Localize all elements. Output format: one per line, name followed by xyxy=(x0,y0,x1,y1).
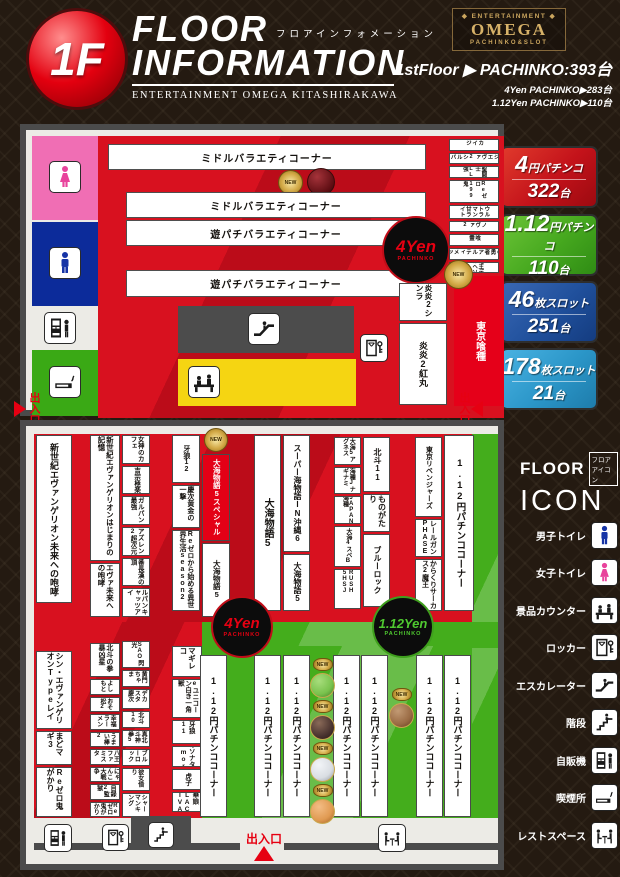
machine-box: 1.12円パチンココーナー xyxy=(200,655,227,817)
stats-4yen: 4Yen PACHINKO▶283台 xyxy=(378,84,612,97)
machine-column: 大海物語5 xyxy=(254,434,281,612)
112yen-corner-column: 1.12円パチンココーナー xyxy=(283,654,310,818)
summary-panel-112yen: 1.12円パチンコ 110台 xyxy=(500,214,598,276)
machine-box: シャーマンキング xyxy=(122,793,150,817)
machine-box: Reゼロ鬼がかり xyxy=(36,767,72,817)
locker-icon xyxy=(102,824,129,851)
machine-box: 1.12円パチンココーナー xyxy=(444,435,474,611)
title-underline xyxy=(132,84,394,86)
machine-box: 1.12円パチンココーナー xyxy=(361,655,388,817)
machine-box: 目録2監獄 xyxy=(90,784,120,799)
machine-box: ルパンキャッツアイ xyxy=(122,588,150,617)
floor-badge-label: 1F xyxy=(50,32,104,86)
machine-box: マギレコ xyxy=(172,646,202,677)
floor-stats-sub: 4Yen PACHINKO▶283台 1.12Yen PACHINKO▶110台 xyxy=(378,84,612,110)
omega-logo-bottom: PACHINKO&SLOT xyxy=(453,40,565,46)
panel-big: 4 xyxy=(515,151,528,177)
machine-box: 東京リベンジャーズ xyxy=(415,437,442,517)
legend-title-jp: フロアアイコン xyxy=(589,452,619,486)
variety-row: 遊パチバラエティコーナー xyxy=(126,270,426,297)
locker-icon xyxy=(591,634,618,661)
4yen-pachinko-badge: 4Yen PACHINKO xyxy=(211,596,273,658)
machine-box: 吉宗極楽 xyxy=(122,466,150,495)
machine-column: 新世紀エヴァンゲリオン未来への咆哮 xyxy=(36,434,72,604)
locker-icon xyxy=(360,334,388,362)
machine-box: にゃんこ大戦争 xyxy=(90,767,120,782)
new-badge: NEW xyxy=(313,784,333,797)
character-face-badge xyxy=(310,757,335,782)
female-toilet-icon xyxy=(49,161,81,193)
new-badge: NEW xyxy=(313,742,333,755)
machine-strip: 東京喰種 xyxy=(454,276,504,406)
machine-box: Reゼロ199鬼 xyxy=(449,180,499,203)
112yen-corner-column: 1.12円パチンココーナー xyxy=(444,654,471,818)
machine-box: 冬のソナタMemory xyxy=(172,746,202,767)
new-machine-badges: NEW xyxy=(389,688,414,752)
character-face-badge xyxy=(310,673,335,698)
legend-item: 景品カウンター xyxy=(512,591,618,629)
male-toilet-icon xyxy=(49,247,81,279)
womens-toilet-block xyxy=(32,136,98,220)
machine-box: まどマギ3 xyxy=(36,731,72,765)
machine-column: シン・エヴァンゲリオンTypeレイまどマギ3Reゼロ鬼がかり xyxy=(36,650,72,818)
vending-machine-icon xyxy=(44,824,72,852)
prize-counter-icon xyxy=(188,366,220,398)
floor-information-poster: 1F FLOOR フロアインフォメーション INFORMATION ENTERT… xyxy=(0,0,620,877)
machine-box: Reゼロ鬼がかり xyxy=(90,802,120,817)
machine-column: 女神のカフェ吉宗極楽ガルパン最強アズレン2超次元番長漢の頂ルパンキャッツアイ xyxy=(122,434,150,618)
machine-box: エヴァ未来への咆哮 xyxy=(90,563,120,617)
machine-column: 1.12円パチンココーナー xyxy=(444,434,474,612)
machine-box: 1.12円パチンココーナー xyxy=(254,655,281,817)
112yen-corner-column: 1.12円パチンココーナー xyxy=(254,654,281,818)
machine-box: 大海物語5 xyxy=(283,554,310,611)
machine-column: マギレコeユニコーン白き一角獣牙狼11冬のソナタMemory虎子中華娘BLACK… xyxy=(172,645,202,813)
machine-box: うまい棒2 xyxy=(90,732,120,747)
smoking-area-icon xyxy=(49,366,81,398)
machine-box: 番長漢の頂 xyxy=(122,558,150,587)
machine-column: カイジゴジエヴァ2シルバー聖闘士LL強Reゼロ199鬼ウルトラマン甘ライトノヴァ… xyxy=(449,138,499,274)
legend-item: ロッカー xyxy=(512,629,618,667)
machine-box: ノヴァ2 xyxy=(449,221,499,233)
machine-box: デカスタ慶次 xyxy=(122,689,150,709)
smoking-area-block xyxy=(32,350,98,416)
legend-item: 階段 xyxy=(512,704,618,742)
machine-box: RUSH 5HSJ xyxy=(334,569,361,610)
machine-box: 八王ファミスタ xyxy=(90,749,120,764)
machine-box: 真の勇者アルティメット xyxy=(449,248,499,260)
female-toilet-icon xyxy=(591,559,618,586)
legend-item: エスカレーター xyxy=(512,666,618,704)
stairs-icon xyxy=(148,822,174,848)
rest-space-icon xyxy=(591,822,618,849)
machine-box: 黄門ちゃま xyxy=(122,670,150,687)
machine-column: 北斗11ものがたりブルーロック xyxy=(363,436,390,608)
machine-box: 大海物語5スペシャル xyxy=(202,454,230,541)
male-toilet-icon xyxy=(591,522,618,549)
stats-112yen: 1.12Yen PACHINKO▶110台 xyxy=(378,97,612,110)
machine-column: 大海5アグネス海種JナギナミJAPAN海種大海4スペBRUSH 5HSJ xyxy=(334,436,361,610)
machine-box: アズレン2超次元 xyxy=(122,527,150,556)
machine-box: Reゼロから始める異世界生活season2 xyxy=(172,530,200,611)
112yen-corner-column: 1.12円パチンココーナー xyxy=(333,654,360,818)
prize-counter-icon xyxy=(591,597,618,624)
machine-column: SAO閃光黄門ちゃまデカスタ慶次北斗10真北斗神拳5ブルーロック彼女借りシャーマ… xyxy=(122,640,150,818)
machine-box: SAO閃光 xyxy=(122,641,150,668)
machine-box: 1.12円パチンココーナー xyxy=(283,655,310,817)
machine-box: 北斗11 xyxy=(363,437,390,492)
summary-panel-178slot: 178枚スロット 21台 xyxy=(500,348,598,410)
machine-box: 真北斗神拳5 xyxy=(122,730,150,747)
machine-column: NEW 大海物語5スペシャル 大海物語5 xyxy=(202,428,230,618)
machine-box: 彼女借り xyxy=(122,768,150,791)
machine-box: 1.12円パチンココーナー xyxy=(444,655,471,817)
title-information: INFORMATION xyxy=(132,46,402,80)
legend-item: 女子トイレ xyxy=(512,554,618,592)
machine-box: 1.12円パチンココーナー xyxy=(416,655,443,817)
vending-machine-icon xyxy=(44,312,76,344)
112yen-corner-column: 1.12円パチンココーナー xyxy=(200,654,227,818)
prize-counter-block xyxy=(178,359,356,406)
machine-box: シン・エヴァンゲリオンTypeレイ xyxy=(36,651,72,729)
new-badge: NEW xyxy=(444,260,473,289)
floor-stats-main: 1stFloor ▶ PACHINKO:393台 xyxy=(378,56,612,80)
machine-column: 新世紀エヴァンゲリオンはじまりの記憶エヴァ未来への咆哮 xyxy=(90,434,120,618)
new-machine-badges: NEW NEW NEW NEW xyxy=(310,658,335,816)
title-subtitle: ENTERTAINMENT OMEGA KITASHIRAKAWA xyxy=(132,90,402,101)
title-floor: FLOOR xyxy=(132,12,268,46)
machine-box: 海種Jナギナミ xyxy=(334,467,361,495)
machine-box: カイジ xyxy=(449,139,499,151)
escalator-block xyxy=(178,306,354,353)
machine-box: JAPAN海種 xyxy=(334,496,361,524)
machine-box: 牙狼12 xyxy=(172,435,200,483)
stairs-icon xyxy=(591,709,618,736)
floor-map-lower: 新世紀エヴァンゲリオン未来への咆哮 新世紀エヴァンゲリオンはじまりの記憶エヴァ未… xyxy=(20,420,504,870)
machine-box: ゴジエヴァ2シルバー xyxy=(449,153,499,165)
machine-box: 幸福ラーメン xyxy=(90,714,120,729)
character-face-badge xyxy=(310,799,335,824)
character-face-badge xyxy=(389,703,414,728)
entrance-exit-bottom: 出入口 xyxy=(232,830,296,847)
machine-box: 北斗10 xyxy=(122,711,150,728)
machine-box: スーパー海物語IN沖縄6 xyxy=(283,435,310,552)
character-face-badge xyxy=(310,715,335,740)
machine-box: 聖闘士LL強 xyxy=(449,166,499,178)
machine-box: 炎炎2シンラ xyxy=(399,283,447,321)
machine-box: 北斗の拳暴凶星 xyxy=(90,643,120,677)
machine-column: 東京リベンジャーズレールガンPHASEからくりサーカス2魔王 xyxy=(415,436,442,612)
new-badge: NEW xyxy=(392,688,412,701)
machine-box: 大海物語5 xyxy=(254,435,281,611)
omega-logo-top: ◆ ENTERTAINMENT ◆ xyxy=(453,12,565,20)
4yen-pachinko-badge: 4Yen PACHINKO xyxy=(382,216,450,284)
machine-box: 大海5アグネス xyxy=(334,437,361,465)
machine-box: おそ松2 xyxy=(90,697,120,712)
exit-arrow-icon xyxy=(14,401,26,417)
rest-space-icon xyxy=(378,824,406,852)
machine-column: 北斗の拳暴凶星よしもとおそ松2幸福ラーメンうまい棒2八王ファミスタにゃんこ大戦争… xyxy=(90,642,120,818)
escalator-icon xyxy=(591,672,618,699)
machine-box: レールガンPHASE xyxy=(415,519,442,557)
legend-item: 喫煙所 xyxy=(512,779,618,817)
floor-map-upper: ミドルバラエティコーナー NEW ミドルバラエティコーナー 遊パチバラエティコー… xyxy=(20,124,504,416)
omega-logo: ◆ ENTERTAINMENT ◆ OMEGA PACHINKO&SLOT xyxy=(452,8,566,51)
escalator-icon xyxy=(248,313,280,345)
legend-title-floor: FLOOR xyxy=(520,459,585,479)
exit-arrow-icon xyxy=(471,401,483,417)
machine-box: 新世紀エヴァンゲリオンはじまりの記憶 xyxy=(90,435,120,561)
vending-machine-icon xyxy=(591,747,618,774)
new-badge: NEW xyxy=(313,658,333,671)
machine-box: 虎子 xyxy=(172,769,202,790)
mens-toilet-block xyxy=(32,222,98,306)
machine-box: 喰霊 xyxy=(449,234,499,246)
variety-row: ミドルバラエティコーナー xyxy=(126,192,426,218)
legend-title-icon: ICON xyxy=(520,486,618,516)
summary-panel-46slot: 46枚スロット 251台 xyxy=(500,281,598,343)
floor-icon-legend: FLOOR フロアアイコン ICON 男子トイレ 女子トイレ 景品カウンター ロ… xyxy=(512,452,618,854)
machine-box: 炎炎2紅丸 xyxy=(399,323,447,405)
omega-logo-main: OMEGA xyxy=(453,20,565,40)
machine-box: 新世紀エヴァンゲリオン未来への咆哮 xyxy=(36,435,72,603)
exit-arrow-icon xyxy=(254,846,274,861)
machine-box: 女神のカフェ xyxy=(122,435,150,464)
machine-box: ガルパン最強 xyxy=(122,496,150,525)
legend-item: 自販機 xyxy=(512,741,618,779)
legend-item: 男子トイレ xyxy=(512,516,618,554)
floor-badge: 1F xyxy=(26,8,128,110)
machine-box: 慶次黄金の一撃 xyxy=(172,485,200,529)
112yen-pachinko-badge: 1.12Yen PACHINKO xyxy=(372,596,434,658)
machine-column: 牙狼12慶次黄金の一撃Reゼロから始める異世界生活season2 xyxy=(172,434,200,612)
variety-row: ミドルバラエティコーナー xyxy=(108,144,426,170)
machine-box: ブルーロック xyxy=(122,749,150,766)
machine-box: 1.12円パチンココーナー xyxy=(333,655,360,817)
new-badge: NEW xyxy=(204,428,228,452)
machine-column: スーパー海物語IN沖縄6大海物語5 xyxy=(283,434,310,612)
machine-box: ものがたり xyxy=(363,494,390,532)
variety-row: 遊パチバラエティコーナー xyxy=(126,220,426,246)
machine-box: eユニコーン白き一角獣 xyxy=(172,679,202,718)
machine-box: 中華娘BLACK DIVA xyxy=(172,792,202,812)
machine-box: よしもと xyxy=(90,679,120,694)
new-badge: NEW xyxy=(313,700,333,713)
machine-box: 大海4スペB xyxy=(334,526,361,567)
machine-box: 牙狼11 xyxy=(172,720,202,743)
112yen-corner-column: 1.12円パチンココーナー xyxy=(416,654,443,818)
112yen-corner-column: 1.12円パチンココーナー xyxy=(361,654,388,818)
machine-box: ウルトラマン甘ライト xyxy=(449,205,499,219)
machine-box: ブルーロック xyxy=(363,534,390,607)
title-block: FLOOR フロアインフォメーション INFORMATION ENTERTAIN… xyxy=(132,12,402,101)
legend-item: レストスペース xyxy=(512,816,618,854)
smoking-area-icon xyxy=(591,784,618,811)
summary-panel-4yen: 4円パチンコ 322台 xyxy=(500,146,598,208)
